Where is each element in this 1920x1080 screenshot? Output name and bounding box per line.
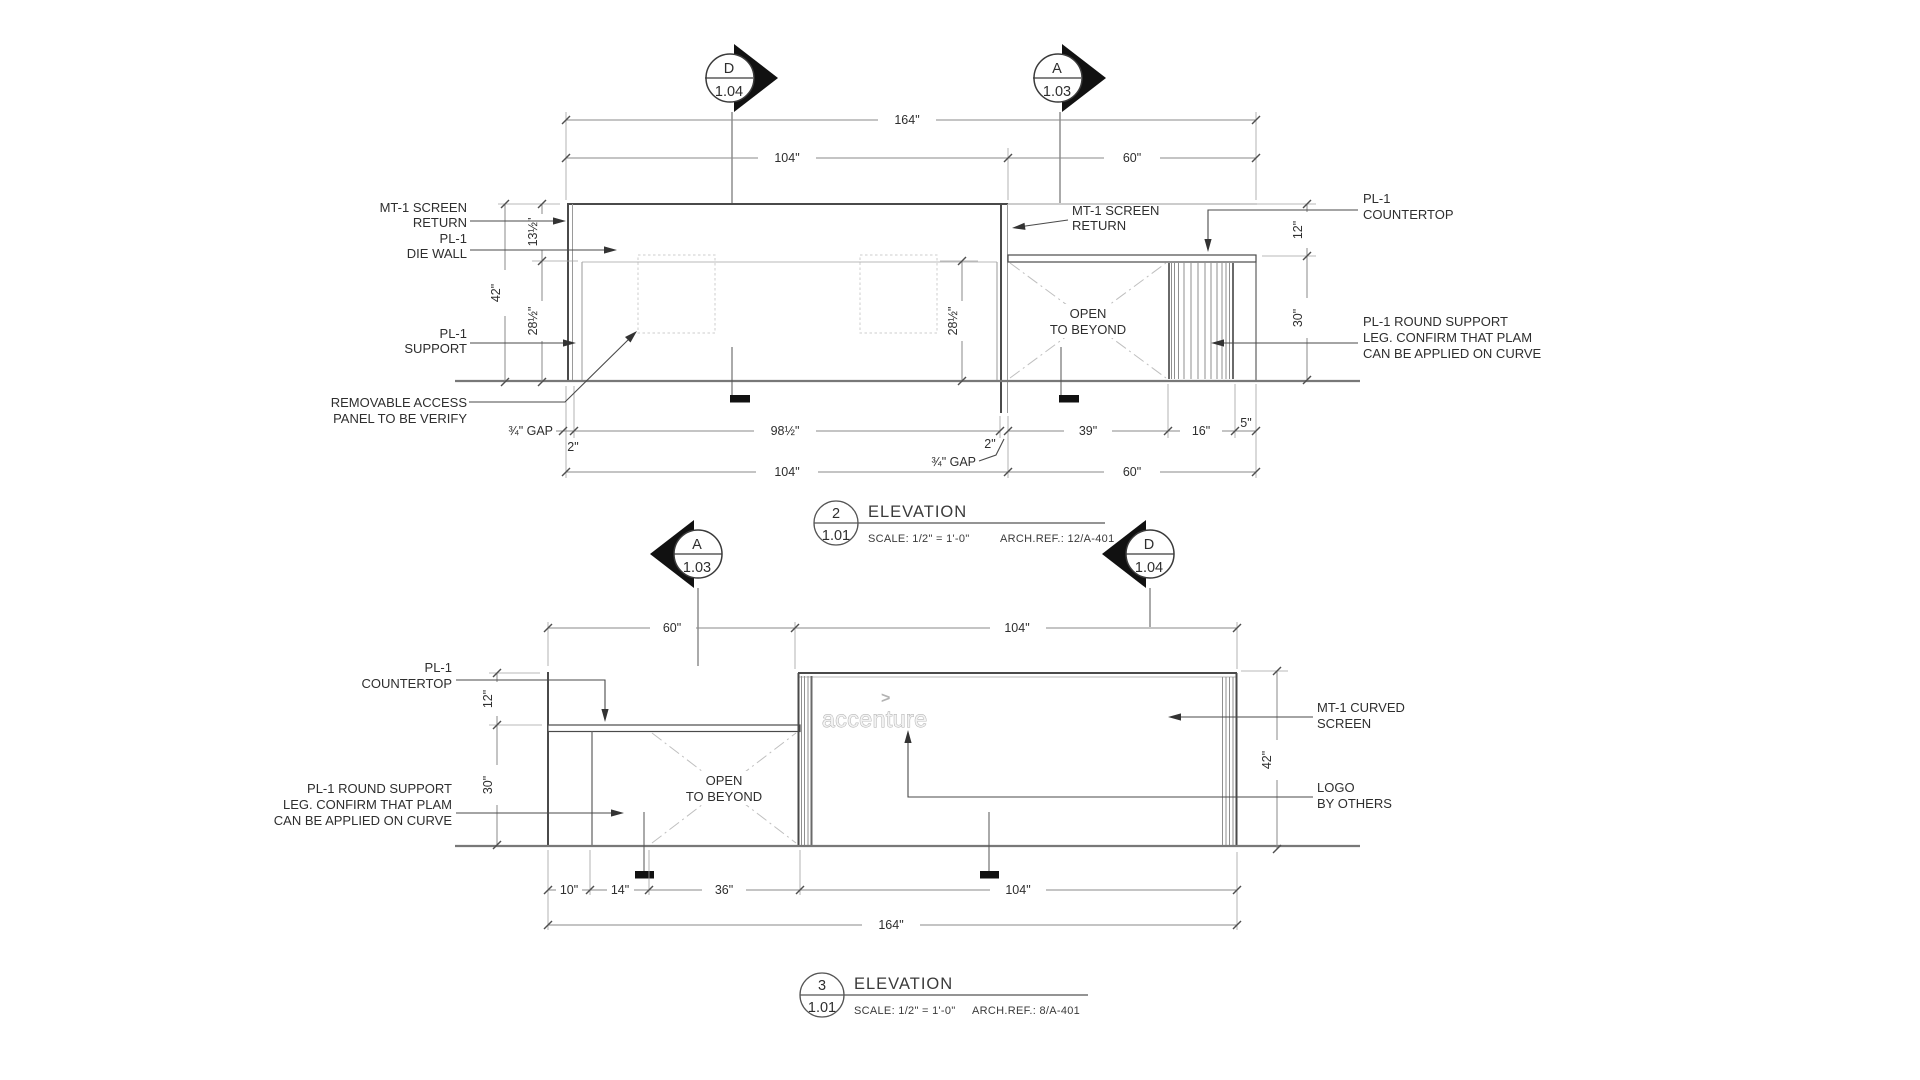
dim-label-98half: 98½" (771, 424, 800, 438)
view-title: ELEVATION (868, 503, 967, 521)
accenture-wordmark: accenture (822, 706, 928, 732)
dim-label-total: 164" (894, 113, 919, 127)
section-marker-d-104[interactable]: D 1.04 (705, 44, 778, 203)
round-support-leg-hatch (1169, 263, 1233, 379)
section-marker-a-103[interactable]: A 1.03 (1033, 44, 1106, 203)
right-vertical-dimension-3: 42" (1241, 667, 1288, 853)
open-to-beyond-area-3: OPEN TO BEYOND (652, 733, 796, 843)
view-scale: SCALE: 1/2" = 1'-0" (868, 533, 970, 545)
note-pl1-support: SUPPORT (404, 341, 467, 356)
dim-label-39: 39" (1079, 424, 1097, 438)
dim-label-right-section: 60" (1123, 151, 1141, 165)
note-pl1-countertop: PL-1 (1363, 191, 1390, 206)
left-notes: MT-1 SCREEN RETURN PL-1 DIE WALL PL-1 SU… (331, 200, 637, 426)
note-pl1-round-support: LEG. CONFIRM THAT PLAM (1363, 330, 1532, 345)
open-to-beyond-label: TO BEYOND (1050, 322, 1126, 337)
dim-label-gap-left: ¾" GAP (508, 424, 553, 438)
right-notes: PL-1 COUNTERTOP PL-1 ROUND SUPPORT LEG. … (1204, 191, 1541, 361)
dim-label-13half: 13½" (526, 218, 540, 247)
open-to-beyond-area: OPEN TO BEYOND (1010, 263, 1166, 378)
dim-label-total: 164" (878, 918, 903, 932)
elevation-3-drawing: A 1.03 D 1.04 60" 104" (274, 520, 1405, 1017)
dim-label-12: 12" (1291, 221, 1305, 239)
floor-outlet-marks (730, 347, 1079, 403)
drawing-sheet: D 1.04 A 1.03 164" 104" 60" (0, 0, 1920, 1080)
marker-letter: A (692, 537, 702, 553)
detail-number: 3 (818, 978, 826, 994)
countertop-slab (1008, 255, 1256, 262)
dim-label-104-bottom: 104" (774, 465, 799, 479)
note-pl1-round-support: CAN BE APPLIED ON CURVE (1363, 346, 1542, 361)
view-title: ELEVATION (854, 975, 953, 993)
dim-label-14: 14" (611, 883, 629, 897)
note-pl1-round-support: PL-1 ROUND SUPPORT (307, 781, 452, 796)
dim-label-42: 42" (489, 284, 503, 302)
accenture-logo: > accenture (822, 690, 928, 732)
note-removable-access-panel: PANEL TO BE VERIFY (333, 411, 467, 426)
dim-label-30: 30" (481, 776, 495, 794)
access-panel-dashed-left (638, 255, 715, 333)
note-mt1-screen-return-mid: MT-1 SCREEN (1072, 203, 1159, 218)
marker-number: 1.04 (1135, 560, 1163, 576)
left-vertical-dimensions: 42" 13½" 28½" (489, 200, 578, 386)
middle-note: MT-1 SCREEN RETURN (1012, 203, 1159, 233)
left-notes-3: PL-1 COUNTERTOP PL-1 ROUND SUPPORT LEG. … (274, 660, 624, 828)
dim-label-28half-b: 28½" (946, 307, 960, 336)
note-mt1-screen-return: MT-1 SCREEN (380, 200, 467, 215)
open-to-beyond-label: TO BEYOND (686, 789, 762, 804)
marker-number: 1.03 (1043, 84, 1071, 100)
open-to-beyond-label: OPEN (1070, 306, 1107, 321)
middle-vertical-dimension: 28½" (940, 257, 978, 385)
bottom-dimensions-3: 10" 14" 36" 104" 164" (544, 850, 1241, 932)
access-panel-dashed-right (860, 255, 937, 333)
marker-letter: D (724, 61, 734, 77)
note-pl1-support: PL-1 (440, 326, 467, 341)
note-mt1-screen-return-mid: RETURN (1072, 218, 1126, 233)
note-removable-access-panel: REMOVABLE ACCESS (331, 395, 468, 410)
elevation-drawing-canvas: D 1.04 A 1.03 164" 104" 60" (0, 0, 1920, 1080)
countertop-slab (548, 725, 800, 732)
marker-letter: D (1144, 537, 1154, 553)
curved-screen-return-hatch (799, 673, 1237, 846)
dim-label-12: 12" (481, 690, 495, 708)
note-logo-by-others: LOGO (1317, 780, 1355, 795)
note-pl1-die-wall: DIE WALL (407, 246, 467, 261)
bottom-dimensions: ¾" GAP 2" 98½" 2" ¾" GAP 39" 16" 5" 104"… (508, 384, 1260, 479)
dim-label-60: 60" (663, 621, 681, 635)
elevation-2-drawing: D 1.04 A 1.03 164" 104" 60" (331, 44, 1542, 545)
sheet-number: 1.01 (822, 528, 850, 544)
dim-label-36: 36" (715, 883, 733, 897)
dim-label-left-section: 104" (774, 151, 799, 165)
detail-number: 2 (832, 506, 840, 522)
accenture-chevron-icon: > (881, 690, 890, 707)
note-pl1-round-support: PL-1 ROUND SUPPORT (1363, 314, 1508, 329)
note-pl1-countertop: COUNTERTOP (361, 676, 452, 691)
dim-label-42: 42" (1260, 751, 1274, 769)
note-pl1-countertop: COUNTERTOP (1363, 207, 1454, 222)
sheet-number: 1.01 (808, 1000, 836, 1016)
marker-number: 1.04 (715, 84, 743, 100)
elevation-3-title: 3 1.01 ELEVATION SCALE: 1/2" = 1'-0" ARC… (800, 973, 1088, 1017)
note-mt1-curved-screen: SCREEN (1317, 716, 1371, 731)
right-notes-3: MT-1 CURVED SCREEN LOGO BY OTHERS (904, 700, 1404, 811)
dim-label-10: 10" (560, 883, 578, 897)
elevation-2-title: 2 1.01 ELEVATION SCALE: 1/2" = 1'-0" ARC… (814, 501, 1115, 545)
dim-label-2in-right: 2" (984, 437, 995, 451)
dim-label-104: 104" (1004, 621, 1029, 635)
top-dimensions: 164" 104" 60" (562, 112, 1260, 200)
top-dimensions-3: 60" 104" (544, 621, 1241, 669)
desk-outline-3 (548, 672, 1237, 845)
marker-number: 1.03 (683, 560, 711, 576)
dim-label-2in-left: 2" (567, 440, 578, 454)
right-vertical-dimensions: 12" 30" (1240, 200, 1316, 384)
marker-letter: A (1052, 61, 1062, 77)
section-marker-a-103-b[interactable]: A 1.03 (650, 520, 722, 666)
dim-label-104: 104" (1005, 883, 1030, 897)
open-to-beyond-label: OPEN (706, 773, 743, 788)
note-pl1-countertop: PL-1 (425, 660, 452, 675)
arch-reference: ARCH.REF.: 12/A-401 (1000, 533, 1115, 545)
note-pl1-round-support: CAN BE APPLIED ON CURVE (274, 813, 453, 828)
dim-label-30: 30" (1291, 309, 1305, 327)
view-scale: SCALE: 1/2" = 1'-0" (854, 1005, 956, 1017)
note-pl1-die-wall: PL-1 (440, 231, 467, 246)
dim-label-5: 5" (1240, 416, 1251, 430)
note-mt1-screen-return: RETURN (413, 215, 467, 230)
note-logo-by-others: BY OTHERS (1317, 796, 1392, 811)
dim-label-gap-right: ¾" GAP (931, 455, 976, 469)
note-mt1-curved-screen: MT-1 CURVED (1317, 700, 1405, 715)
left-vertical-dimensions-3: 12" 30" (481, 669, 542, 849)
note-pl1-round-support: LEG. CONFIRM THAT PLAM (283, 797, 452, 812)
dim-label-16: 16" (1192, 424, 1210, 438)
dim-label-28half: 28½" (526, 307, 540, 336)
dim-label-60-bottom: 60" (1123, 465, 1141, 479)
arch-reference: ARCH.REF.: 8/A-401 (972, 1005, 1080, 1017)
